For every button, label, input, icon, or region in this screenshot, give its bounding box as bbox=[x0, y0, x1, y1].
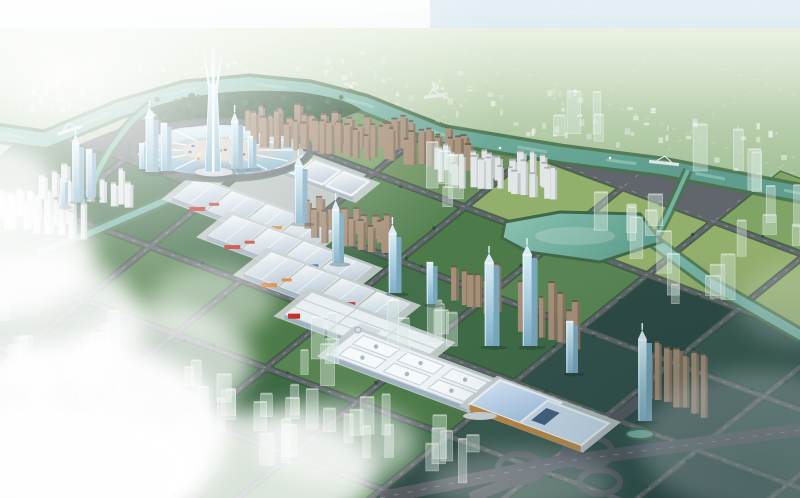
scene-canvas bbox=[0, 0, 800, 498]
bottomright-vignette bbox=[0, 0, 800, 498]
aerial-city-rendering bbox=[0, 0, 800, 498]
